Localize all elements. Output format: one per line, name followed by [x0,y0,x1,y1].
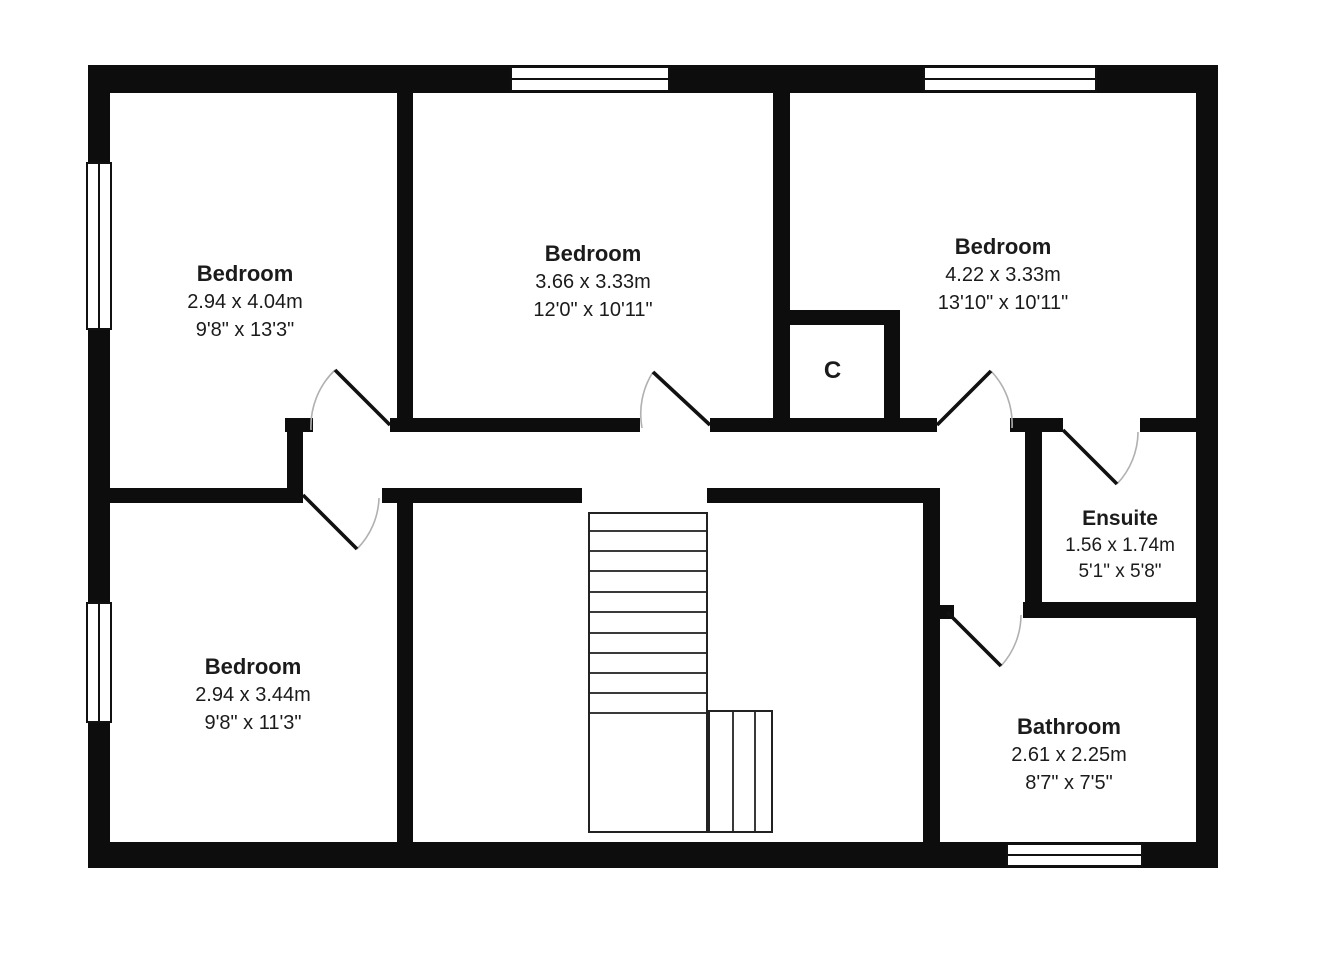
room-imperial: 12'0" x 10'11" [463,296,723,324]
closet-label: C [810,357,855,385]
wall-hall-lower-2 [382,488,582,503]
window-top-right-bedroom [923,66,1097,92]
room-metric: 2.94 x 4.04m [115,288,375,316]
wall-ensuite-left [1025,432,1042,618]
room-name: Bathroom [984,713,1154,741]
stair-tread [590,530,706,532]
window-left-upper-bedroom [86,162,112,330]
stair-tread [590,672,706,674]
wall-bedroom2-bedroom3 [773,93,790,432]
floorplan: Bedroom 2.94 x 4.04m 9'8" x 13'3" Bedroo… [0,0,1320,966]
wall-stairs-bathroom [923,488,940,842]
room-label-bedroom-top-left: Bedroom 2.94 x 4.04m 9'8" x 13'3" [115,260,375,344]
stair-tread [732,712,734,831]
door-ensuite [1063,430,1138,484]
staircase-flight [588,512,708,833]
room-name: Bedroom [123,653,383,681]
room-name: Bedroom [463,240,723,268]
room-label-bathroom: Bathroom 2.61 x 2.25m 8'7" x 7'5" [984,713,1154,797]
window-bathroom [1006,843,1143,867]
door-bedroom-top-left [311,370,390,430]
wall-bathroom-door-hinge [940,605,954,619]
room-metric: 2.61 x 2.25m [984,741,1154,769]
stair-tread [590,570,706,572]
wall-ensuite-bathroom [1023,602,1196,618]
room-imperial: 13'10" x 10'11" [873,289,1133,317]
stair-tread [590,632,706,634]
room-imperial: 5'1" x 5'8" [1046,559,1194,585]
room-metric: 1.56 x 1.74m [1046,533,1194,559]
room-label-bedroom-middle: Bedroom 3.66 x 3.33m 12'0" x 10'11" [463,240,723,324]
stair-tread [590,652,706,654]
stair-landing-edge [590,712,706,714]
staircase-lower-winders [708,710,773,833]
room-imperial: 8'7" x 7'5" [984,769,1154,797]
wall-bedroom1-bedroom2 [397,93,413,432]
door-bathroom [947,612,1021,666]
room-label-bedroom-bottom-left: Bedroom 2.94 x 3.44m 9'8" x 11'3" [123,653,383,737]
window-top-middle-bedroom [510,66,670,92]
wall-hall-upper-3 [1010,418,1063,432]
wall-closet-right [884,310,900,432]
room-metric: 4.22 x 3.33m [873,261,1133,289]
wall-hall-lower-3 [707,488,937,503]
room-name: Bedroom [873,233,1133,261]
room-name: Ensuite [1046,505,1194,533]
door-bedroom-middle [641,372,710,428]
window-left-lower-bedroom [86,602,112,723]
room-label-bedroom-top-right: Bedroom 4.22 x 3.33m 13'10" x 10'11" [873,233,1133,317]
stair-tread [590,692,706,694]
stair-tread [590,550,706,552]
room-name: Bedroom [115,260,375,288]
wall-hall-upper-1 [390,418,640,432]
wall-hall-upper-4 [1140,418,1196,432]
stair-tread [754,712,756,831]
door-bedroom-bottom-left [303,495,379,549]
wall-hall-upper-2 [710,418,937,432]
room-imperial: 9'8" x 13'3" [115,316,375,344]
stair-tread [590,611,706,613]
room-imperial: 9'8" x 11'3" [123,709,383,737]
stair-tread [590,591,706,593]
door-bedroom-top-right [937,371,1012,428]
room-metric: 3.66 x 3.33m [463,268,723,296]
wall-outer-right [1196,65,1218,868]
room-metric: 2.94 x 3.44m [123,681,383,709]
wall-bedroom4-stairs [397,488,413,842]
wall-hall-lower-1 [110,488,302,503]
room-label-ensuite: Ensuite 1.56 x 1.74m 5'1" x 5'8" [1046,505,1194,585]
